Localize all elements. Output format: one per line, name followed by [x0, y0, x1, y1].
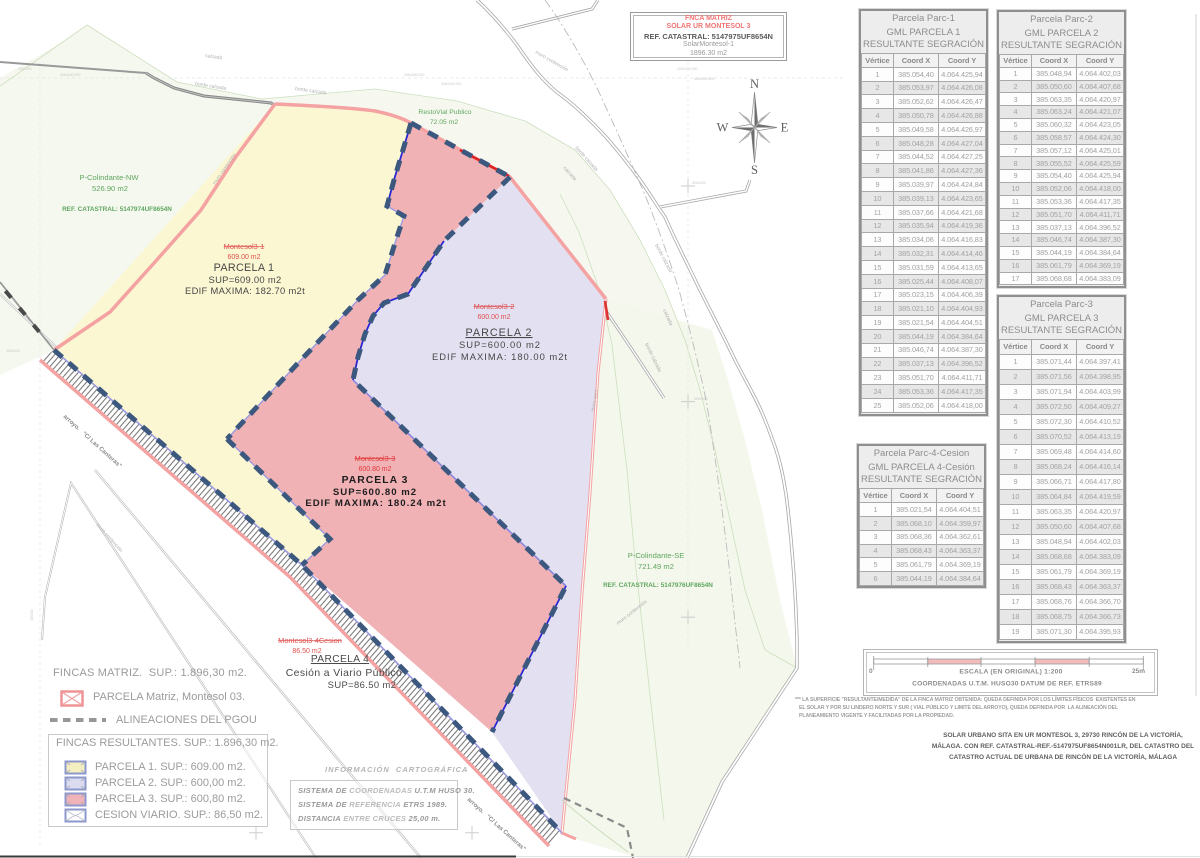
svg-text:4064415: 4064415	[6, 349, 20, 353]
svg-text:muro contención: muro contención	[95, 522, 124, 554]
svg-text:4064430.000: 4064430.000	[441, 82, 461, 86]
svg-text:P-Colindante-NW: P-Colindante-NW	[79, 173, 139, 182]
svg-text:4064425: 4064425	[692, 181, 706, 185]
svg-text:REF. CATASTRAL: 5147974UF8654N: REF. CATASTRAL: 5147974UF8654N	[62, 206, 172, 213]
svg-text:4064440: 4064440	[18, 67, 32, 71]
svg-text:calzada: calzada	[205, 53, 223, 61]
svg-text:SUP=609.00 m2: SUP=609.00 m2	[209, 274, 282, 285]
svg-text:PARCELA 3: PARCELA 3	[342, 475, 409, 486]
svg-text:4064440.000: 4064440.000	[60, 73, 80, 77]
svg-text:EDIF MAXIMA: 182.70 m2t: EDIF MAXIMA: 182.70 m2t	[185, 285, 305, 296]
svg-text:E: E	[781, 121, 789, 135]
svg-text:Cesión a Viario Público: Cesión a Viario Público	[286, 668, 402, 679]
svg-text:EDIF MAXIMA: 180.00 m2t: EDIF MAXIMA: 180.00 m2t	[432, 351, 568, 362]
svg-text:S: S	[751, 163, 758, 177]
svg-text:SUP=600.80 m2: SUP=600.80 m2	[333, 487, 417, 498]
svg-text:Montesol3-4Cesion: Montesol3-4Cesion	[278, 636, 342, 645]
svg-text:EDIF MAXIMA: 180.24 m2t: EDIF MAXIMA: 180.24 m2t	[305, 498, 446, 509]
svg-text:Montesol3-3: Montesol3-3	[355, 454, 396, 463]
svg-text:385000: 385000	[30, 609, 34, 621]
svg-text:Montesol3-2: Montesol3-2	[474, 302, 515, 311]
svg-text:600.80 m2: 600.80 m2	[358, 466, 391, 473]
svg-text:SUP=86.50 m2: SUP=86.50 m2	[328, 679, 397, 690]
svg-text:RestoVial Publico: RestoVial Publico	[418, 109, 471, 116]
svg-text:721.49 m2: 721.49 m2	[638, 562, 674, 571]
svg-text:4064430.000: 4064430.000	[677, 67, 697, 71]
svg-text:PARCELA 2: PARCELA 2	[465, 327, 532, 339]
svg-text:REF. CATASTRAL: 5147976UF8654N: REF. CATASTRAL: 5147976UF8654N	[603, 582, 713, 589]
svg-text:muro contención: muro contención	[534, 50, 569, 74]
svg-text:4064425.000: 4064425.000	[694, 77, 714, 81]
svg-text:N: N	[750, 77, 759, 91]
svg-text:4064430.000: 4064430.000	[404, 73, 424, 77]
svg-text:600.00 m2: 600.00 m2	[477, 314, 510, 321]
svg-text:SUP=600.00 m2: SUP=600.00 m2	[459, 339, 541, 350]
svg-text:609.00 m2: 609.00 m2	[227, 254, 260, 261]
svg-text:borde calzada: borde calzada	[653, 243, 673, 274]
svg-text:W: W	[717, 121, 729, 135]
svg-text:P-Colindante-SE: P-Colindante-SE	[628, 551, 685, 560]
svg-text:526.90 m2: 526.90 m2	[92, 184, 128, 193]
svg-text:Montesol3-1: Montesol3-1	[224, 242, 265, 251]
svg-text:PARCELA 1: PARCELA 1	[214, 262, 275, 274]
svg-text:72.05 m2: 72.05 m2	[430, 119, 459, 126]
svg-text:PARCELA 4: PARCELA 4	[311, 654, 369, 665]
